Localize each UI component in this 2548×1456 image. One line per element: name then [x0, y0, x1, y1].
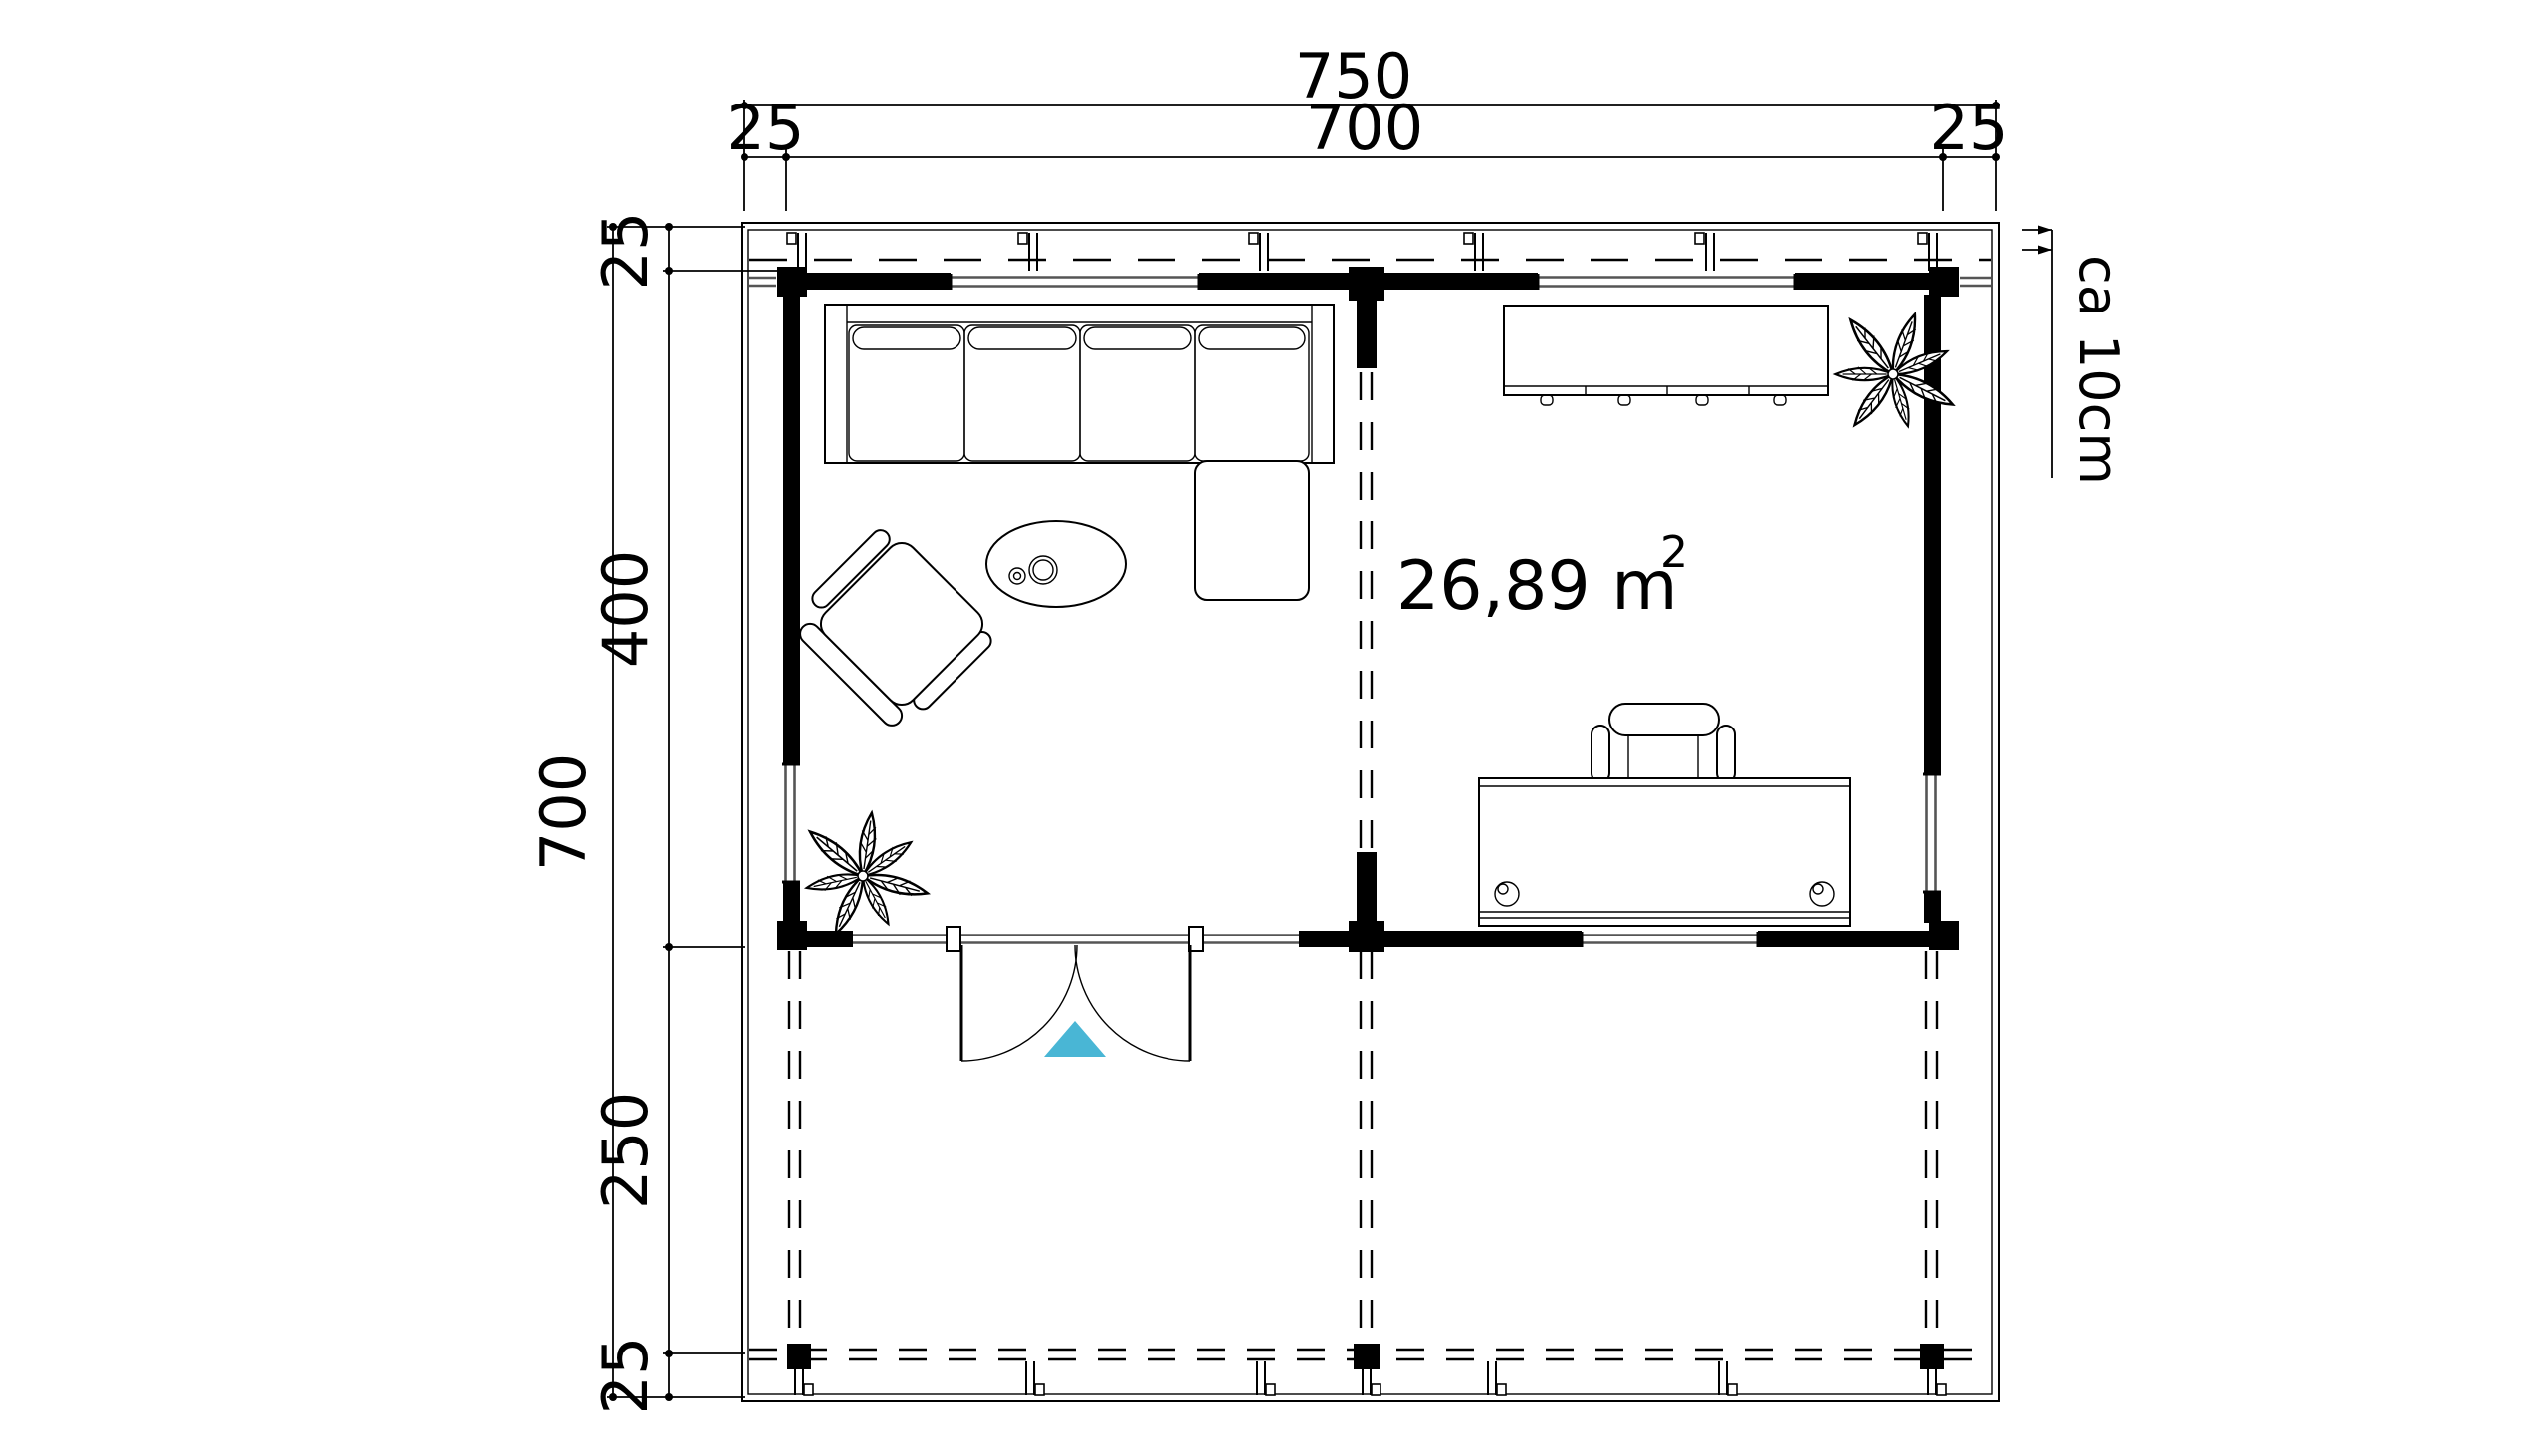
- dimension-lines: [607, 100, 2052, 1401]
- rafter-mark: [1026, 1361, 1044, 1395]
- chair-backrest: [1609, 704, 1719, 735]
- sideboard-foot: [1696, 395, 1708, 405]
- dim-label-left-middle: 400: [589, 550, 662, 668]
- window-bottom-left-b: [1203, 936, 1299, 943]
- wall-right-segment: [1924, 892, 1941, 923]
- floor-plan-page: 26,89 m 2 75: [0, 0, 2548, 1456]
- wall-top-segment: [1199, 273, 1357, 290]
- chair-armrest: [1592, 726, 1609, 782]
- arrowhead: [2038, 246, 2052, 255]
- rafter-mark: [1719, 1361, 1737, 1395]
- overhang-note-label: ca 10cm: [2067, 255, 2130, 485]
- wall-top-segment: [1795, 273, 1929, 290]
- armchair: [785, 521, 1000, 736]
- window-bottom-right-room: [1582, 932, 1758, 947]
- rafter-marks-top: [787, 233, 1937, 271]
- coffee-table: [986, 521, 1126, 607]
- dim-label-top-left: 25: [727, 92, 805, 164]
- window-top-right-room: [1538, 274, 1795, 290]
- terrace-post-left: [787, 1344, 811, 1369]
- partition-junction-bottom: [1349, 921, 1384, 952]
- rafter-mark: [1464, 233, 1483, 271]
- wall-corner-bottom-left: [777, 921, 807, 950]
- rafter-mark: [1488, 1361, 1506, 1395]
- rafter-mark: [1257, 1361, 1275, 1395]
- terrace-posts: [787, 1344, 1944, 1369]
- rafter-mark: [1363, 1369, 1380, 1395]
- sideboard: [1504, 306, 1828, 405]
- area-label-exponent: 2: [1660, 527, 1688, 578]
- sofa-chaise: [1195, 461, 1309, 600]
- wall-top-segment: [805, 273, 951, 290]
- wall-bottom-segment: [1299, 931, 1357, 947]
- partition-stub-bottom: [1357, 852, 1377, 926]
- floor-plan-drawing: 26,89 m 2 75: [0, 0, 2548, 1456]
- window-bottom-left-a: [853, 936, 949, 943]
- rafter-mark: [1018, 233, 1037, 271]
- wall-bottom-segment: [1758, 931, 1929, 947]
- entrance-door: [947, 927, 1203, 1061]
- door-marker-triangle: [1044, 1021, 1106, 1057]
- window-right-wall: [1923, 774, 1941, 892]
- plant-top-right: [1824, 300, 1972, 447]
- desk-top: [1479, 778, 1850, 926]
- wall-bottom-segment: [1377, 931, 1582, 947]
- sideboard-top: [1504, 306, 1828, 395]
- rafter-mark: [1249, 233, 1268, 271]
- dim-label-left-bottom: 25: [589, 1337, 662, 1415]
- wall-bottom-segment: [805, 931, 853, 947]
- overhang-dimension: [2022, 226, 2052, 479]
- arrowhead: [2038, 226, 2052, 235]
- window-left-wall: [782, 764, 800, 882]
- dim-label-top-right: 25: [1930, 92, 2009, 164]
- rafter-mark: [1695, 233, 1714, 271]
- terrace-post-center: [1354, 1344, 1380, 1369]
- sideboard-foot: [1541, 395, 1553, 405]
- dim-label-left-top: 25: [589, 212, 662, 291]
- wall-top-segment: [1377, 273, 1538, 290]
- wall-corner-top-right: [1929, 267, 1959, 297]
- wall-corner-bottom-right: [1929, 921, 1959, 950]
- window-top-left-room: [951, 274, 1199, 290]
- wall-left-segment: [783, 882, 800, 923]
- rafter-mark: [1928, 1369, 1946, 1395]
- dim-label-left-lower: 250: [589, 1092, 662, 1209]
- partition-stub-top: [1357, 295, 1377, 368]
- door-jamb-left: [947, 927, 960, 951]
- plant-bottom-left: [805, 812, 930, 936]
- dim-label-top-center: 700: [1306, 92, 1423, 164]
- sideboard-foot: [1774, 395, 1786, 405]
- rafter-mark: [787, 233, 806, 271]
- sideboard-foot: [1618, 395, 1630, 405]
- wall-left-segment: [783, 295, 800, 764]
- desk: [1479, 778, 1850, 926]
- chair-armrest: [1717, 726, 1735, 782]
- rafter-mark: [1918, 233, 1937, 271]
- armchair-seat: [814, 536, 988, 711]
- dim-label-left-total: 700: [528, 753, 600, 871]
- office-chair: [1592, 704, 1735, 782]
- terrace-post-right: [1920, 1344, 1944, 1369]
- area-label: 26,89 m: [1396, 547, 1678, 626]
